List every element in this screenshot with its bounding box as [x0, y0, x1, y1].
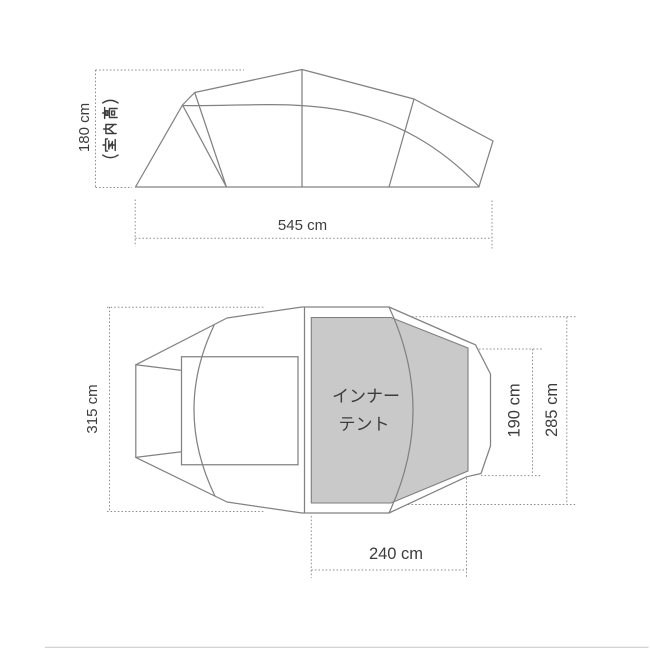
- svg-text:180 cm: 180 cm: [76, 103, 93, 152]
- svg-text:285 cm: 285 cm: [543, 383, 561, 437]
- svg-text:240 cm: 240 cm: [369, 545, 423, 563]
- svg-text:インナー: インナー: [332, 387, 400, 406]
- svg-text:545 cm: 545 cm: [278, 217, 327, 234]
- svg-text:190 cm: 190 cm: [506, 383, 524, 437]
- svg-text:テント: テント: [339, 415, 390, 434]
- svg-text:315 cm: 315 cm: [84, 384, 101, 433]
